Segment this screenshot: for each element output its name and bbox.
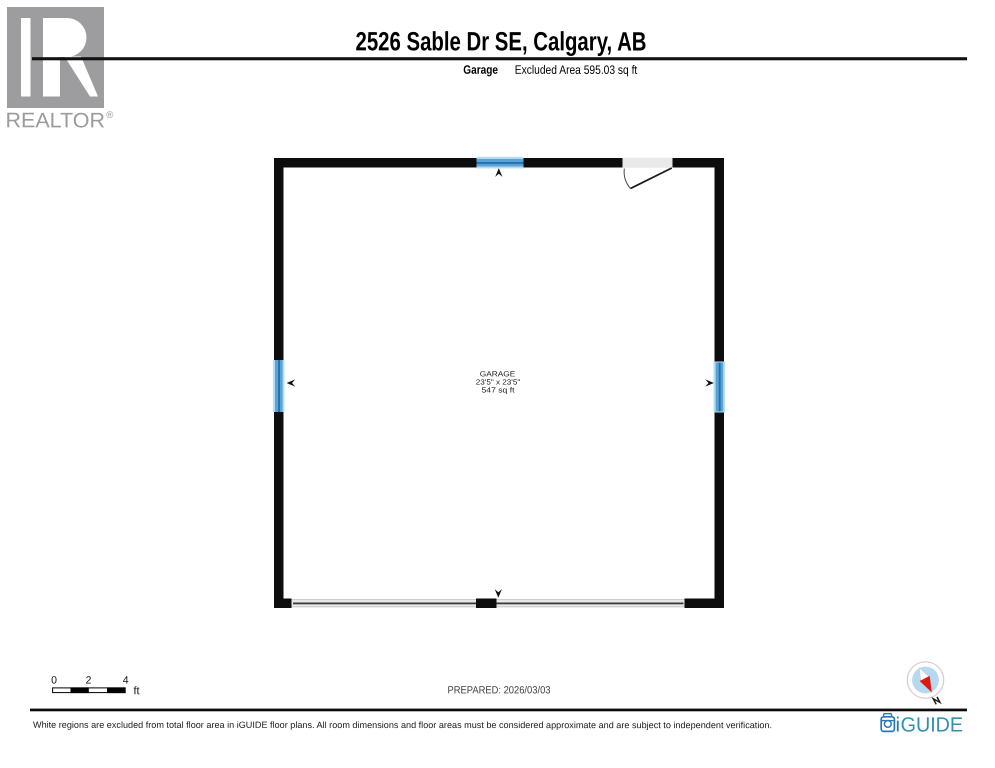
- svg-text:547 sq ft: 547 sq ft: [481, 385, 514, 394]
- svg-text:White regions are excluded fro: White regions are excluded from total fl…: [33, 720, 772, 730]
- svg-text:2526 Sable Dr SE, Calgary, AB: 2526 Sable Dr SE, Calgary, AB: [355, 26, 646, 56]
- svg-text:®: ®: [106, 110, 113, 121]
- svg-text:REALTOR: REALTOR: [5, 109, 105, 132]
- svg-text:i: i: [895, 714, 900, 737]
- svg-text:ft: ft: [133, 685, 139, 697]
- svg-text:GUIDE: GUIDE: [901, 714, 964, 737]
- svg-text:PREPARED: 2026/03/03: PREPARED: 2026/03/03: [447, 685, 550, 696]
- svg-text:Excluded Area 595.03 sq ft: Excluded Area 595.03 sq ft: [515, 63, 638, 77]
- svg-text:Garage: Garage: [463, 63, 498, 77]
- svg-text:0: 0: [51, 674, 57, 686]
- svg-text:2: 2: [86, 674, 92, 686]
- svg-text:4: 4: [123, 674, 129, 686]
